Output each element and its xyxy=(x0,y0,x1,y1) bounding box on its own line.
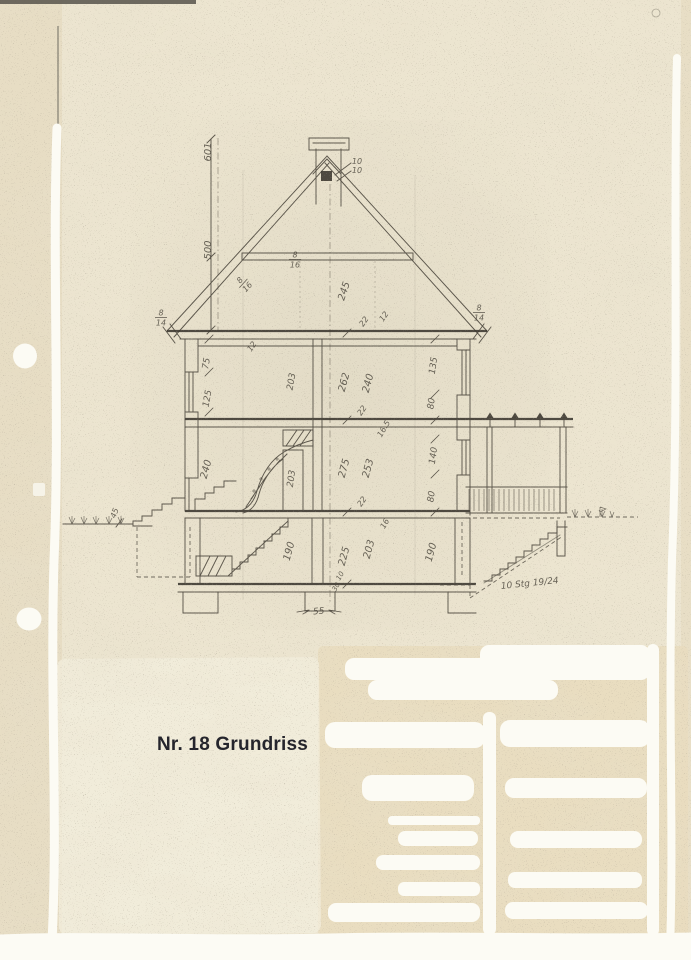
page-edge-bottom xyxy=(0,938,691,960)
redaction-blob xyxy=(510,831,642,848)
page-edge-bottom-wave xyxy=(0,936,691,938)
redaction-separator xyxy=(647,644,659,936)
redaction-blob xyxy=(362,775,474,801)
redaction-blob xyxy=(398,882,480,896)
redaction-blob xyxy=(325,722,485,748)
hole-punch xyxy=(17,608,42,631)
redaction-blob xyxy=(505,902,648,919)
redaction-blob xyxy=(500,720,650,747)
page-edge-top xyxy=(0,0,196,4)
paper-blemish xyxy=(33,483,45,496)
redaction-blob xyxy=(480,645,650,669)
redaction-blob xyxy=(505,778,647,798)
redaction-blob xyxy=(368,680,558,700)
redaction-blob xyxy=(328,903,480,922)
redaction-blob xyxy=(508,872,642,888)
redaction-separator xyxy=(483,712,496,935)
scanned-drawing-page: 6015001010816816814814245221275125122032… xyxy=(0,0,691,960)
redaction-blob xyxy=(376,855,480,870)
redaction-blob xyxy=(388,816,480,825)
drawing-title: Nr. 18 Grundriss xyxy=(157,734,308,756)
redaction-blob xyxy=(398,831,478,846)
blueprint-scan: 6015001010816816814814245221275125122032… xyxy=(0,0,691,960)
hole-punch xyxy=(13,344,37,369)
paper-grain xyxy=(0,0,691,960)
